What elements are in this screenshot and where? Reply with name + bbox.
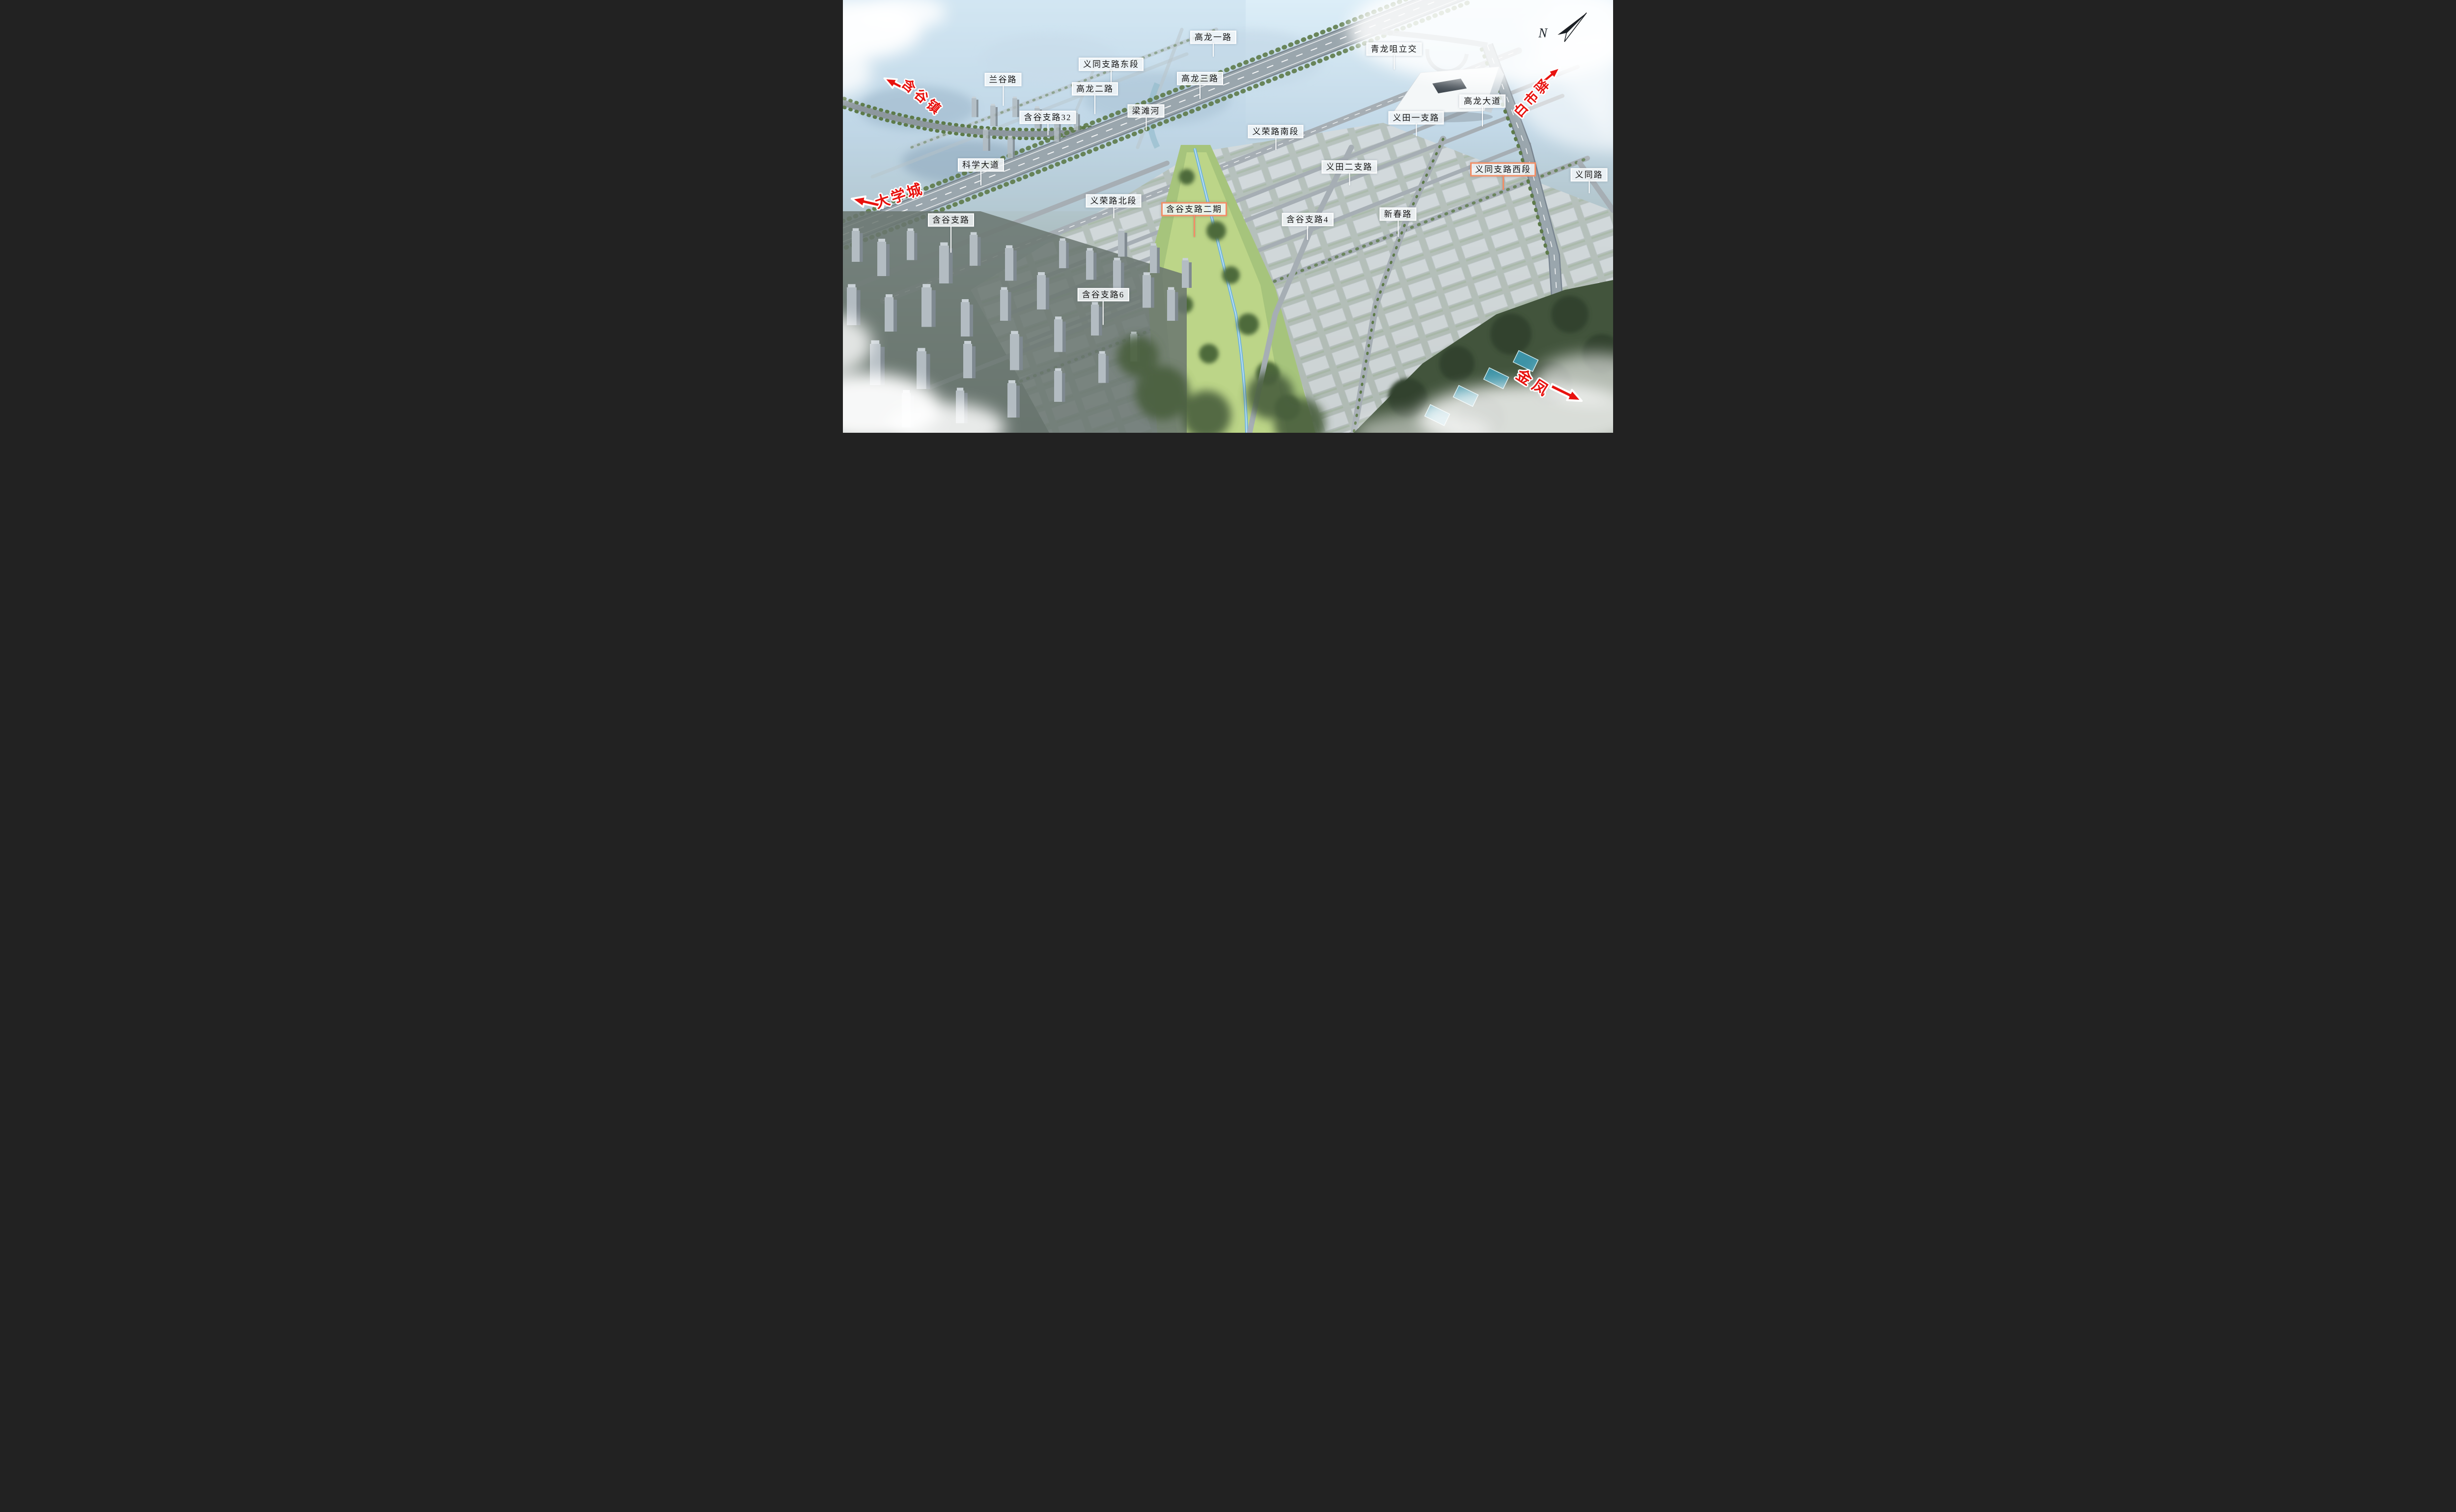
road-label-gaolong-erlu: 高龙二路 <box>1072 82 1118 95</box>
road-label-qinglongzui-lijiao: 青龙咀立交 <box>1367 42 1422 56</box>
leader-line <box>1094 95 1095 114</box>
road-label-kexue-dadao: 科学大道 <box>958 158 1004 171</box>
road-label-yitian-yi-zhilu: 义田一支路 <box>1389 111 1444 124</box>
road-label-text: 义荣路北段 <box>1090 196 1137 205</box>
road-label-text: 义荣路南段 <box>1253 127 1299 136</box>
leader-line <box>1194 215 1195 237</box>
road-label-yitian-er-zhilu: 义田二支路 <box>1322 160 1377 173</box>
leader-line <box>1589 181 1590 194</box>
road-label-gaolong-sanlu: 高龙三路 <box>1177 72 1223 85</box>
road-label-text: 含谷支路 <box>932 215 970 224</box>
road-label-text: 含谷支路6 <box>1082 290 1125 299</box>
road-label-langu-lu: 兰谷路 <box>985 73 1022 86</box>
compass: N <box>1532 9 1595 47</box>
road-label-yirong-lu-nanduan: 义荣路南段 <box>1248 125 1304 138</box>
road-label-text: 高龙二路 <box>1076 84 1114 93</box>
compass-n-label: N <box>1538 26 1547 41</box>
road-label-hangu-zhilu-32: 含谷支路32 <box>1020 111 1076 124</box>
leader-line <box>1503 175 1504 190</box>
road-label-yitong-lu: 义同路 <box>1571 168 1608 181</box>
road-label-text: 含谷支路二期 <box>1166 204 1222 214</box>
road-label-text: 高龙一路 <box>1195 32 1232 42</box>
road-label-yirong-lu-beiduan: 义荣路北段 <box>1086 194 1142 207</box>
road-label-text: 梁滩河 <box>1132 106 1160 115</box>
road-label-gaolong-yilu: 高龙一路 <box>1190 30 1236 44</box>
road-label-text: 高龙三路 <box>1181 74 1219 83</box>
road-label-hangu-zhilu-6: 含谷支路6 <box>1078 288 1129 301</box>
road-label-text: 义同支路西段 <box>1475 165 1531 174</box>
aerial-planning-rendering: 高龙一路青龙咀立交义同支路东段兰谷路高龙三路高龙二路含谷支路32梁滩河高龙大道义… <box>843 0 1613 433</box>
leader-line <box>1416 124 1417 137</box>
leader-line <box>1349 173 1350 186</box>
leader-line <box>1113 207 1114 219</box>
leader-line <box>1394 55 1395 70</box>
leader-line <box>980 171 981 186</box>
road-label-hangu-zhilu-erqi: 含谷支路二期 <box>1161 202 1227 216</box>
road-label-hangu-zhilu: 含谷支路 <box>928 213 974 226</box>
road-label-text: 义田一支路 <box>1393 113 1440 122</box>
road-label-liangtan-he: 梁滩河 <box>1128 104 1165 117</box>
road-label-yitong-zhilu-dongduan: 义同支路东段 <box>1079 57 1144 71</box>
road-label-text: 义田二支路 <box>1326 162 1373 171</box>
leader-line <box>1482 107 1483 127</box>
road-label-text: 兰谷路 <box>989 75 1017 84</box>
road-label-text: 新春路 <box>1384 209 1412 219</box>
leader-line <box>1103 301 1104 325</box>
road-label-hangu-zhilu-4: 含谷支路4 <box>1282 213 1334 226</box>
leader-line <box>1145 117 1146 131</box>
road-label-xinchun-lu: 新春路 <box>1380 207 1417 221</box>
road-label-gaolong-dadao: 高龙大道 <box>1459 94 1506 108</box>
road-label-text: 青龙咀立交 <box>1371 44 1418 54</box>
road-label-text: 高龙大道 <box>1464 96 1501 106</box>
road-label-text: 义同路 <box>1575 170 1603 179</box>
leader-line <box>1275 138 1276 150</box>
road-label-text: 科学大道 <box>962 160 1000 169</box>
road-label-text: 含谷支路32 <box>1024 112 1072 122</box>
road-label-yitong-zhilu-xiduan: 义同支路西段 <box>1470 162 1536 176</box>
leader-line <box>950 226 951 253</box>
road-label-text: 含谷支路4 <box>1286 215 1329 224</box>
leader-line <box>1111 70 1112 83</box>
leader-line <box>1200 84 1200 99</box>
leader-line <box>1213 43 1214 57</box>
leader-line <box>1047 123 1048 136</box>
leader-line <box>1307 225 1308 240</box>
road-label-text: 义同支路东段 <box>1083 59 1139 69</box>
leader-line <box>1397 220 1398 237</box>
leader-line <box>1003 85 1004 106</box>
